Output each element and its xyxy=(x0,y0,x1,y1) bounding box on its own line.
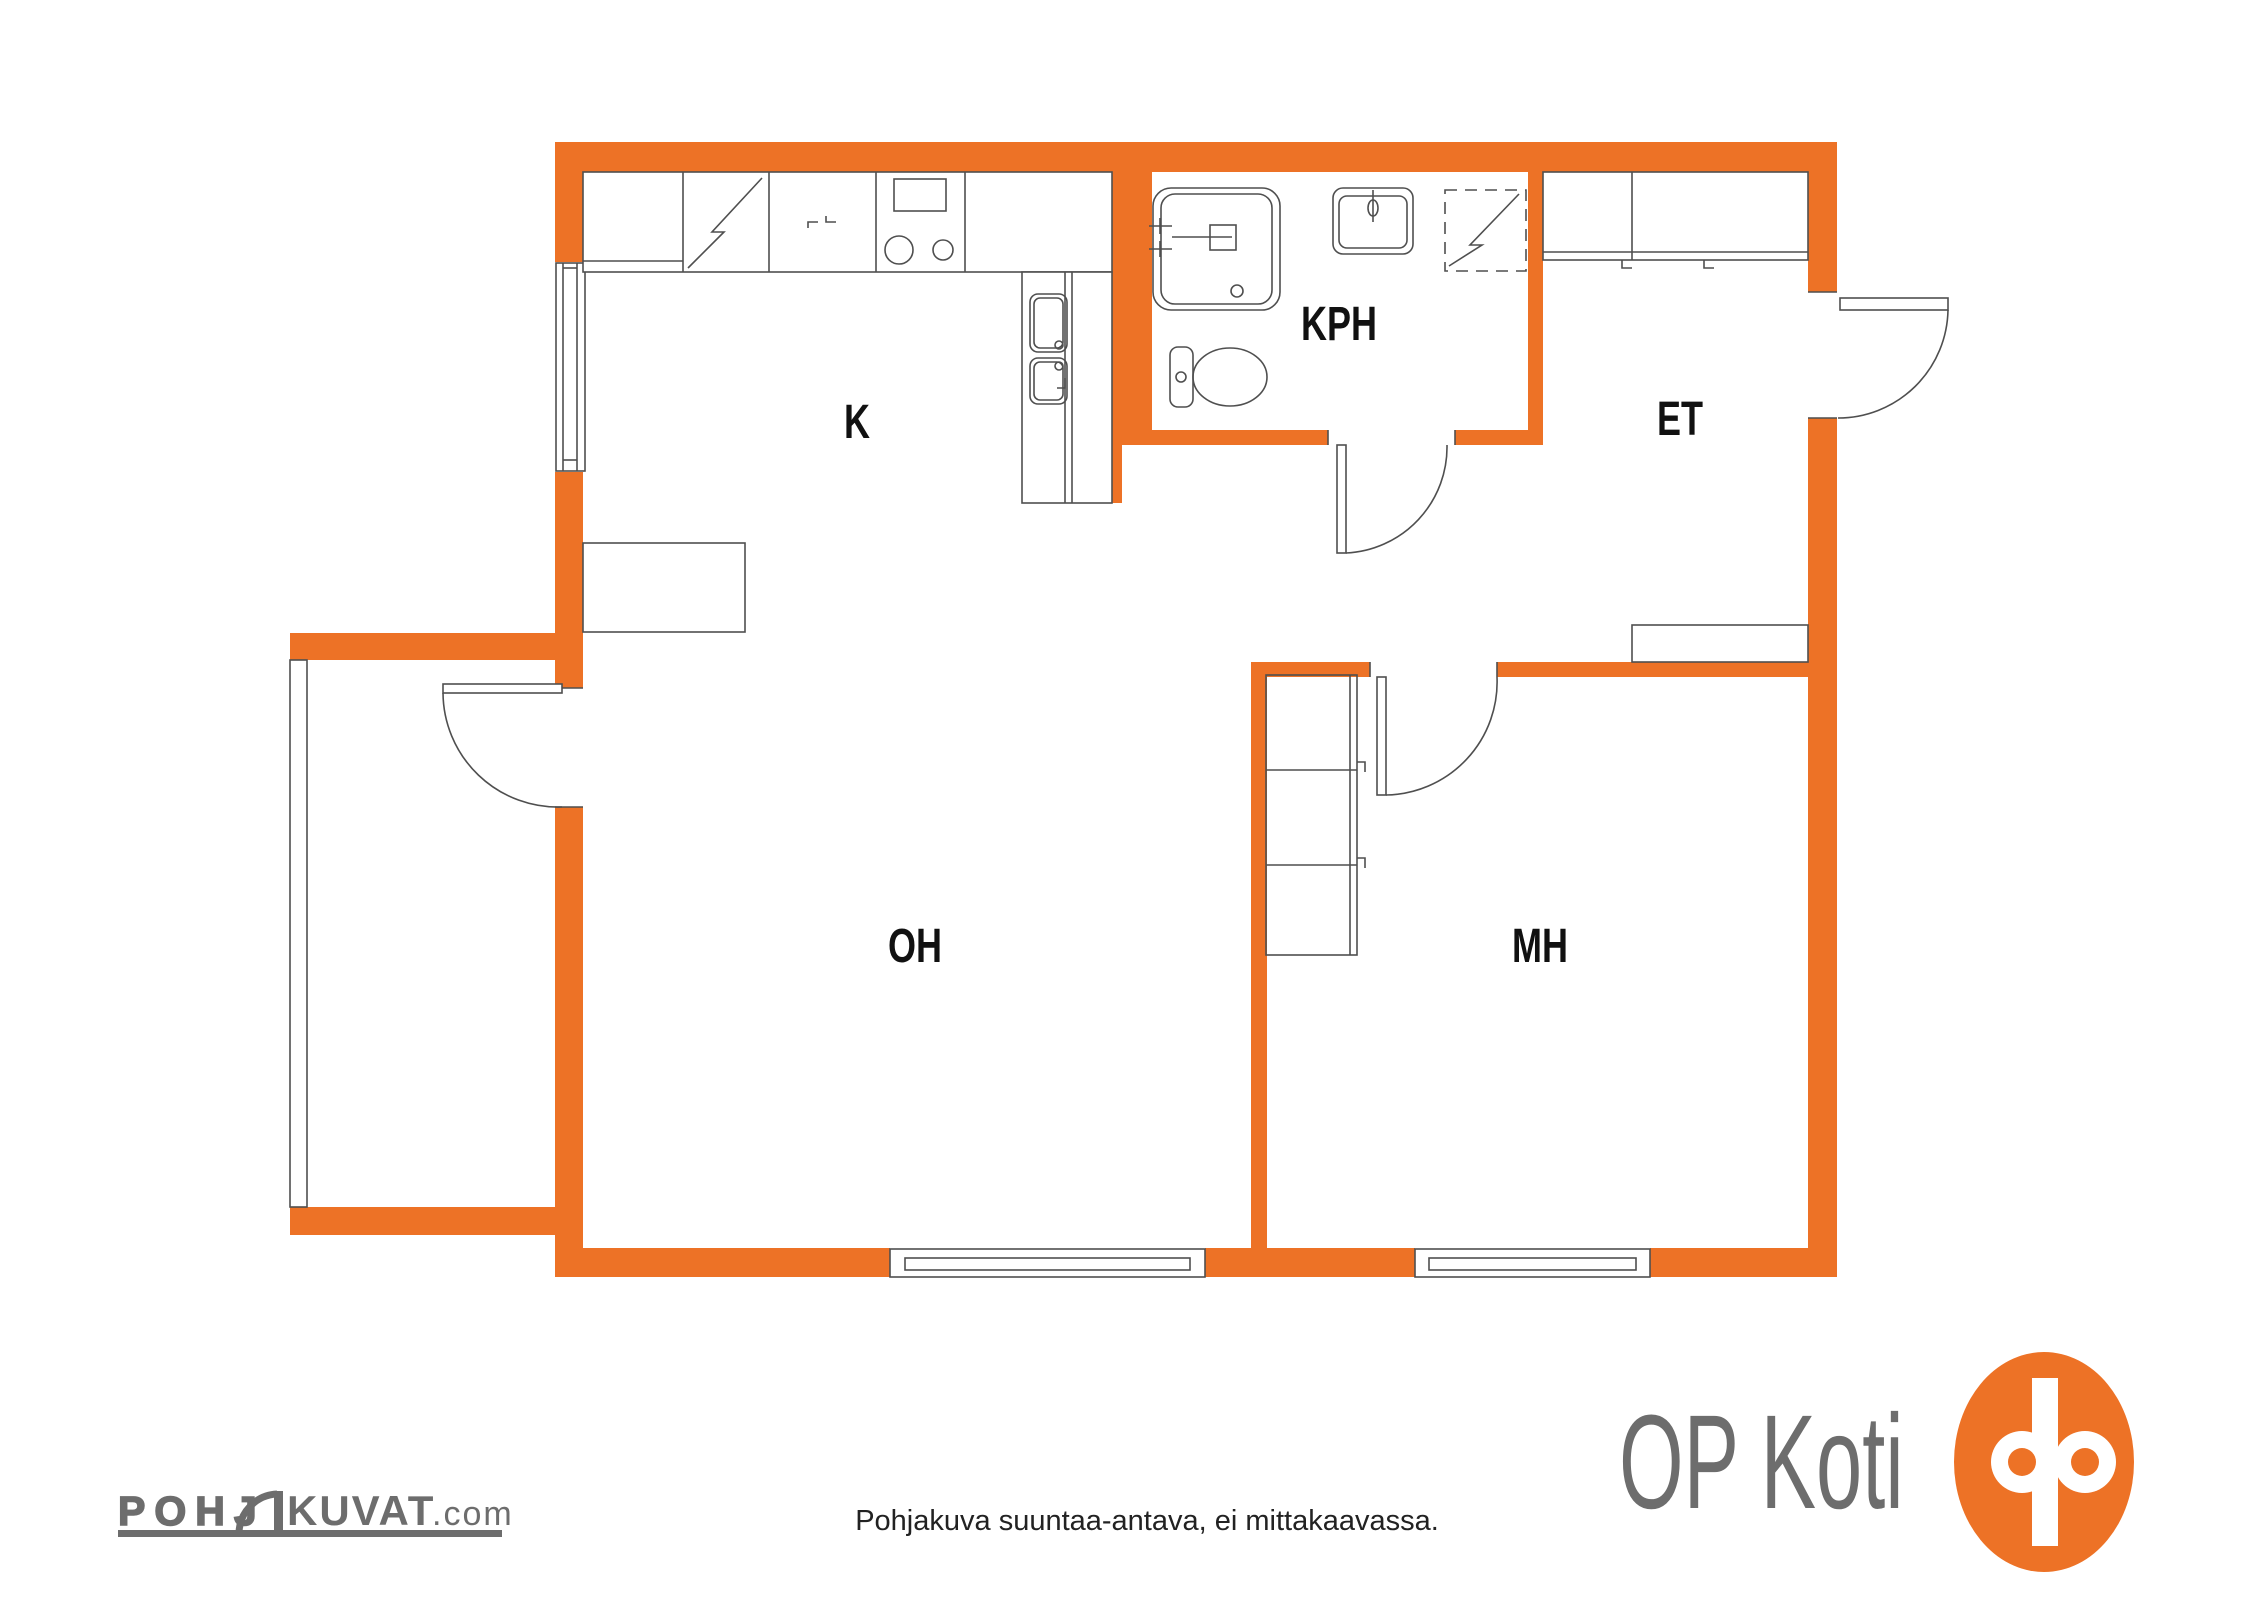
opening-balcony-door xyxy=(552,688,586,807)
floorplan-drawing: K KPH ET OH MH OP Koti POHJ KUVAT .com P… xyxy=(0,0,2262,1600)
pohjakuvat-logo: POHJ KUVAT .com xyxy=(118,1487,514,1537)
kitchen-fixtures xyxy=(583,172,1112,503)
opening-bathroom-door xyxy=(1328,430,1455,445)
balcony-railing xyxy=(290,660,307,1207)
pohjakuvat-main: KUVAT xyxy=(287,1487,435,1534)
kitchen-peninsula-sink xyxy=(1022,272,1112,503)
wall-bedroom-left xyxy=(1251,662,1267,1248)
wall-bathroom-right xyxy=(1528,172,1543,445)
room-label-kitchen: K xyxy=(844,395,870,448)
entry-wardrobe xyxy=(1543,172,1808,268)
door-bedroom xyxy=(1370,662,1497,795)
pohjakuvat-underline xyxy=(118,1530,502,1537)
wall-balcony-bottom xyxy=(290,1207,555,1235)
kitchen-counter xyxy=(583,172,1112,272)
bathroom-sink-icon xyxy=(1333,188,1413,254)
op-koti-branding: OP Koti xyxy=(1619,1352,2134,1572)
room-label-bathroom: KPH xyxy=(1301,297,1377,350)
toilet-icon xyxy=(1170,347,1267,407)
doors xyxy=(443,292,1948,807)
wall-bathroom-left xyxy=(1112,172,1152,445)
entry-shelf xyxy=(1632,625,1808,662)
room-label-bedroom: MH xyxy=(1512,919,1568,972)
opening-living-window xyxy=(890,1246,1205,1279)
bedroom-closet xyxy=(1266,675,1365,955)
pohjakuvat-tld: .com xyxy=(432,1495,514,1533)
opening-bedroom-door xyxy=(1370,662,1497,677)
windows xyxy=(290,263,1650,1277)
wall-kitchen-stub xyxy=(1112,445,1122,503)
washing-machine-icon xyxy=(1445,190,1526,271)
room-label-living: OH xyxy=(888,919,942,972)
door-bathroom xyxy=(1328,430,1455,553)
wall-balcony-top xyxy=(290,633,555,660)
shower-icon xyxy=(1149,188,1280,310)
opening-left-window xyxy=(552,262,586,472)
opening-bedroom-window xyxy=(1415,1246,1650,1279)
op-logo-icon xyxy=(1954,1352,2134,1572)
room-label-entry: ET xyxy=(1657,392,1703,445)
opening-front-door xyxy=(1806,292,1839,418)
room-labels: K KPH ET OH MH xyxy=(844,297,1703,972)
op-koti-wordmark: OP Koti xyxy=(1619,1387,1904,1537)
disclaimer-text: Pohjakuva suuntaa-antava, ei mittakaavas… xyxy=(855,1505,1439,1537)
floorplan-canvas: K KPH ET OH MH OP Koti POHJ KUVAT .com P… xyxy=(0,0,2262,1600)
wall-top xyxy=(555,142,1837,172)
storage-fixtures xyxy=(583,172,1808,955)
living-sideboard xyxy=(583,543,745,632)
wall-openings xyxy=(552,262,1839,1279)
